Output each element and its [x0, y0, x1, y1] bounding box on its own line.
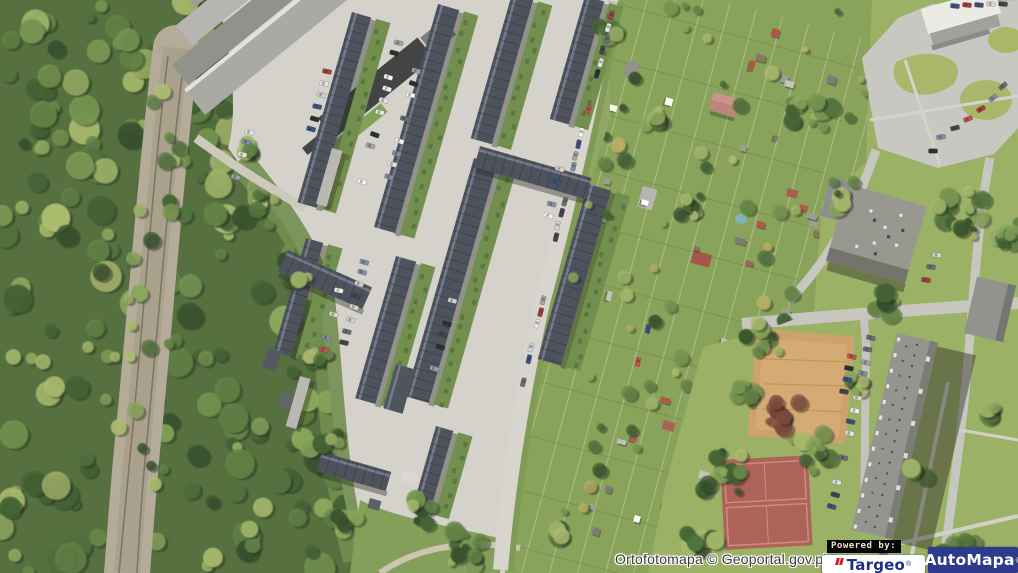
targeo-quote-icon — [836, 558, 845, 565]
registered-mark: ® — [906, 561, 911, 568]
attribution-text: Ortofotomapa © Geoportal.gov.pl — [615, 551, 827, 567]
powered-by-label: Powered by: — [827, 540, 901, 553]
targeo-logo-text: Targeo — [847, 556, 905, 573]
automapa-logo-text: AutoMapa — [924, 551, 1014, 569]
targeo-logo[interactable]: Targeo® — [822, 555, 925, 573]
photo-tint — [0, 0, 1018, 573]
automapa-logo[interactable]: AutoMapa® — [928, 547, 1018, 573]
map-viewport: Ortofotomapa © Geoportal.gov.pl Powered … — [0, 0, 1018, 573]
map-canvas[interactable] — [0, 0, 1018, 573]
